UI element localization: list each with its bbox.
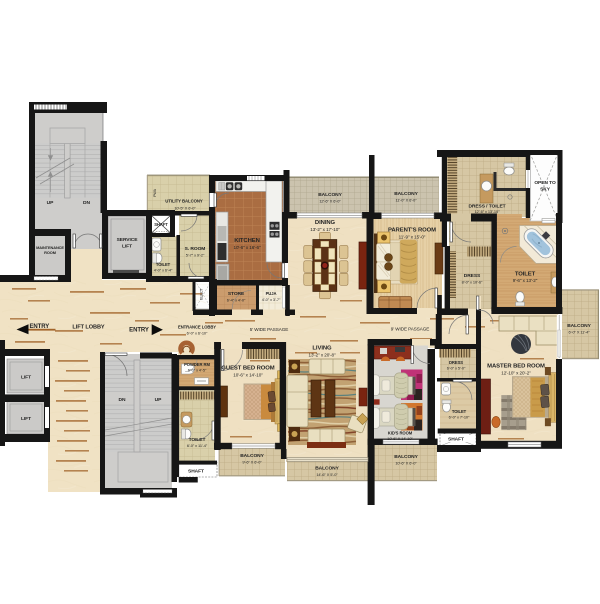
- svg-text:LIVING: LIVING: [312, 346, 332, 352]
- svg-text:TOILET: TOILET: [156, 262, 171, 267]
- svg-text:BALCONY: BALCONY: [240, 453, 264, 459]
- svg-text:6'-4" x 4'-0": 6'-4" x 4'-0": [227, 298, 246, 303]
- svg-text:SHAFT: SHAFT: [154, 222, 168, 227]
- svg-text:LIFT: LIFT: [122, 244, 132, 250]
- svg-text:11'-0" X 6'-0": 11'-0" X 6'-0": [395, 198, 417, 203]
- svg-text:DRESS: DRESS: [449, 360, 463, 365]
- svg-text:14'-6" X 5'-0": 14'-6" X 5'-0": [316, 472, 338, 477]
- svg-text:13'-2" x 20'-8": 13'-2" x 20'-8": [308, 353, 336, 358]
- svg-text:12'-6" x 13'-10": 12'-6" x 13'-10": [475, 209, 501, 214]
- svg-text:10'-6" X 6'-0": 10'-6" X 6'-0": [395, 461, 417, 466]
- svg-text:BALCONY: BALCONY: [318, 192, 342, 198]
- svg-text:9'-6" X 6'-0": 9'-6" X 6'-0": [242, 460, 262, 465]
- svg-text:POWDER RM: POWDER RM: [184, 362, 210, 367]
- svg-text:DINING: DINING: [315, 220, 336, 226]
- svg-text:9'-6" x 13'-2": 9'-6" x 13'-2": [513, 278, 538, 283]
- svg-text:6'-0" x 7'-10": 6'-0" x 7'-10": [449, 415, 470, 420]
- svg-text:6'-0" X 11'-4": 6'-0" X 11'-4": [568, 330, 590, 335]
- svg-text:KITCHEN: KITCHEN: [234, 238, 260, 244]
- svg-text:6'-0" x 6'-10": 6'-0" x 6'-10": [187, 331, 208, 336]
- svg-text:SHAFT: SHAFT: [188, 469, 204, 475]
- svg-text:BALCONY: BALCONY: [394, 454, 418, 460]
- svg-text:LIFT: LIFT: [21, 416, 31, 422]
- svg-text:ELECT: ELECT: [200, 287, 204, 300]
- svg-text:6'-0" x 5'-0": 6'-0" x 5'-0": [447, 366, 466, 371]
- svg-text:4'-0" x 6'-4": 4'-0" x 6'-4": [154, 268, 173, 273]
- svg-text:13'-2" x 17'-10": 13'-2" x 17'-10": [310, 227, 340, 232]
- svg-text:8'-0" x 10'-6": 8'-0" x 10'-6": [462, 280, 483, 285]
- svg-text:DRESS: DRESS: [464, 273, 481, 279]
- svg-text:PWA: PWA: [153, 188, 157, 196]
- svg-text:BALCONY: BALCONY: [567, 323, 591, 329]
- svg-text:9' WIDE PASSAGE: 9' WIDE PASSAGE: [391, 327, 429, 332]
- svg-text:10'-5" X 6'-0": 10'-5" X 6'-0": [174, 206, 196, 211]
- svg-text:PARENT'S ROOM: PARENT'S ROOM: [388, 228, 436, 234]
- svg-text:STORE: STORE: [228, 291, 245, 297]
- svg-text:DN: DN: [119, 397, 126, 403]
- svg-text:OPEN TO: OPEN TO: [534, 180, 556, 186]
- svg-text:UP: UP: [47, 200, 54, 206]
- svg-text:5'-7" x 9'-2": 5'-7" x 9'-2": [186, 253, 205, 258]
- svg-text:12'-10" x 20'-2": 12'-10" x 20'-2": [501, 371, 531, 376]
- svg-text:SERVICE: SERVICE: [117, 237, 139, 243]
- svg-text:LIFT LOBBY: LIFT LOBBY: [72, 325, 104, 331]
- svg-text:6'-0" x 11'-4": 6'-0" x 11'-4": [187, 443, 208, 448]
- svg-text:GUEST BED ROOM: GUEST BED ROOM: [221, 366, 274, 372]
- svg-text:MASTER BED ROOM: MASTER BED ROOM: [487, 364, 545, 370]
- svg-text:ENTRANCE LOBBY: ENTRANCE LOBBY: [178, 325, 216, 330]
- svg-text:KID'S ROOM: KID'S ROOM: [388, 431, 413, 436]
- svg-text:DN: DN: [83, 200, 90, 206]
- svg-text:ENTRY: ENTRY: [129, 328, 149, 334]
- svg-text:10'-6" x 16'-6": 10'-6" x 16'-6": [233, 245, 261, 250]
- svg-text:4'-0" x 3'-7": 4'-0" x 3'-7": [262, 297, 281, 302]
- svg-text:ENTRY: ENTRY: [30, 324, 50, 330]
- svg-text:10'-6" X 14'-10": 10'-6" X 14'-10": [387, 436, 413, 441]
- svg-text:PUJA: PUJA: [266, 291, 277, 296]
- svg-text:SHAFT: SHAFT: [448, 437, 464, 443]
- svg-text:6'-0" x 4'-5": 6'-0" x 4'-5": [188, 368, 207, 373]
- svg-text:UTILITY BALCONY: UTILITY BALCONY: [165, 199, 203, 204]
- svg-text:BALCONY: BALCONY: [315, 466, 339, 472]
- svg-text:10'-6" x 14'-10": 10'-6" x 14'-10": [233, 373, 263, 378]
- svg-text:LIFT: LIFT: [21, 375, 31, 381]
- svg-text:BALCONY: BALCONY: [394, 191, 418, 197]
- svg-text:S. ROOM: S. ROOM: [185, 246, 206, 252]
- svg-text:TOILET: TOILET: [452, 409, 467, 414]
- svg-text:ROOM: ROOM: [44, 250, 56, 255]
- svg-text:UP: UP: [155, 397, 162, 403]
- svg-text:11'-9" x 15'-0": 11'-9" x 15'-0": [399, 235, 426, 240]
- svg-text:12'-6" X 6'-0": 12'-6" X 6'-0": [319, 199, 341, 204]
- svg-text:SKY: SKY: [540, 187, 551, 193]
- svg-text:5' WIDE PASSAGE: 5' WIDE PASSAGE: [250, 327, 288, 332]
- svg-text:TOILET: TOILET: [515, 272, 536, 278]
